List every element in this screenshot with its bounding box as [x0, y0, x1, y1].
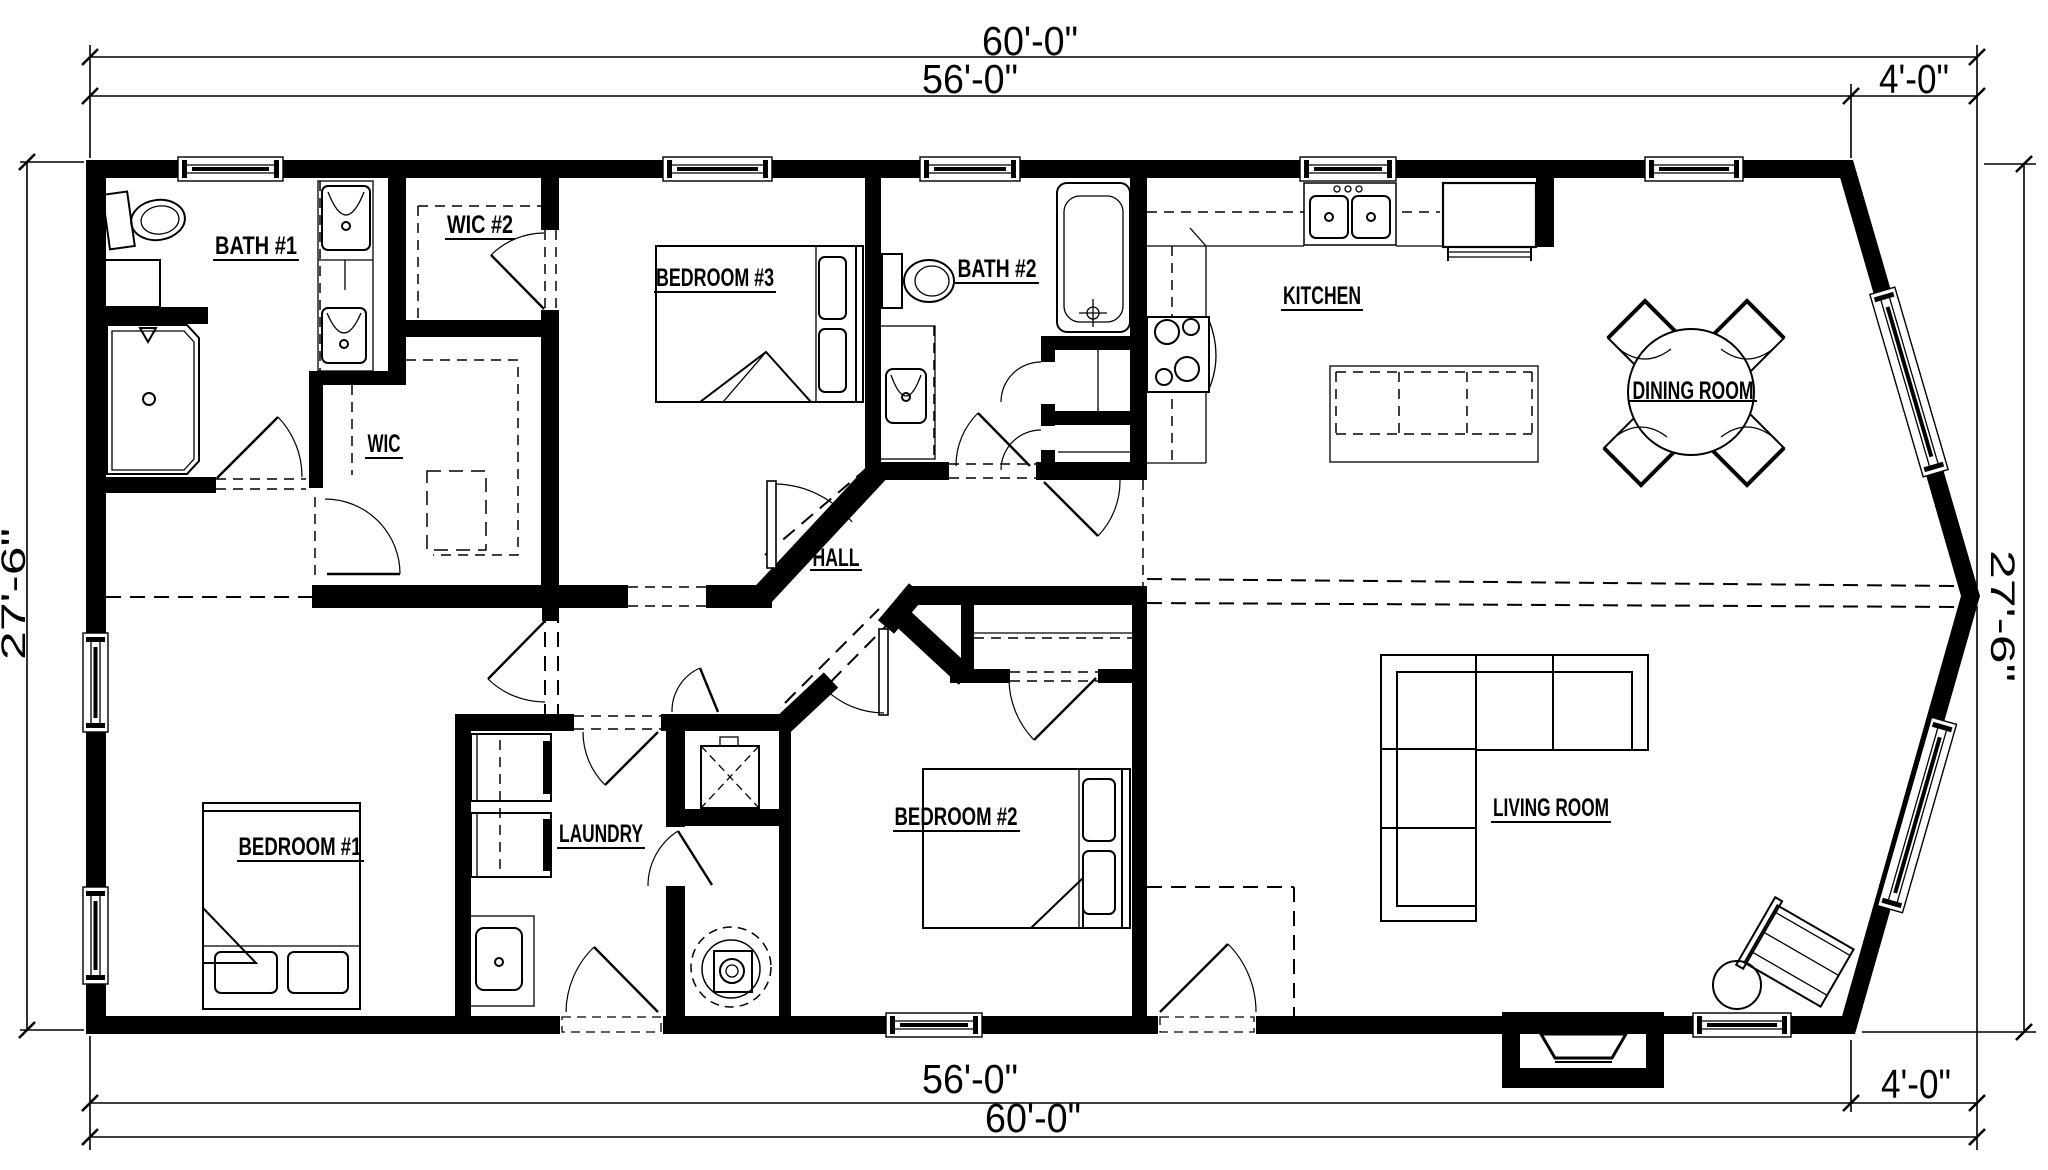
svg-text:BATH #2: BATH #2 — [958, 255, 1037, 283]
svg-text:LIVING ROOM: LIVING ROOM — [1493, 794, 1609, 822]
svg-text:4'-0": 4'-0" — [1881, 1061, 1951, 1107]
svg-text:4'-0": 4'-0" — [1879, 56, 1949, 102]
svg-text:BEDROOM #2: BEDROOM #2 — [895, 803, 1018, 831]
svg-text:WIC: WIC — [368, 430, 401, 458]
svg-text:BEDROOM #1: BEDROOM #1 — [239, 833, 362, 861]
svg-text:27'-6": 27'-6" — [1983, 550, 2021, 682]
svg-text:BATH #1: BATH #1 — [215, 232, 297, 260]
svg-text:60'-0": 60'-0" — [985, 1095, 1081, 1141]
svg-text:WIC #2: WIC #2 — [447, 211, 513, 239]
svg-text:KITCHEN: KITCHEN — [1283, 282, 1361, 310]
svg-text:LAUNDRY: LAUNDRY — [559, 820, 643, 848]
svg-text:56'-0": 56'-0" — [922, 56, 1018, 102]
svg-text:HALL: HALL — [813, 544, 860, 572]
svg-text:27'-6": 27'-6" — [0, 528, 33, 660]
svg-text:BEDROOM #3: BEDROOM #3 — [656, 264, 774, 292]
